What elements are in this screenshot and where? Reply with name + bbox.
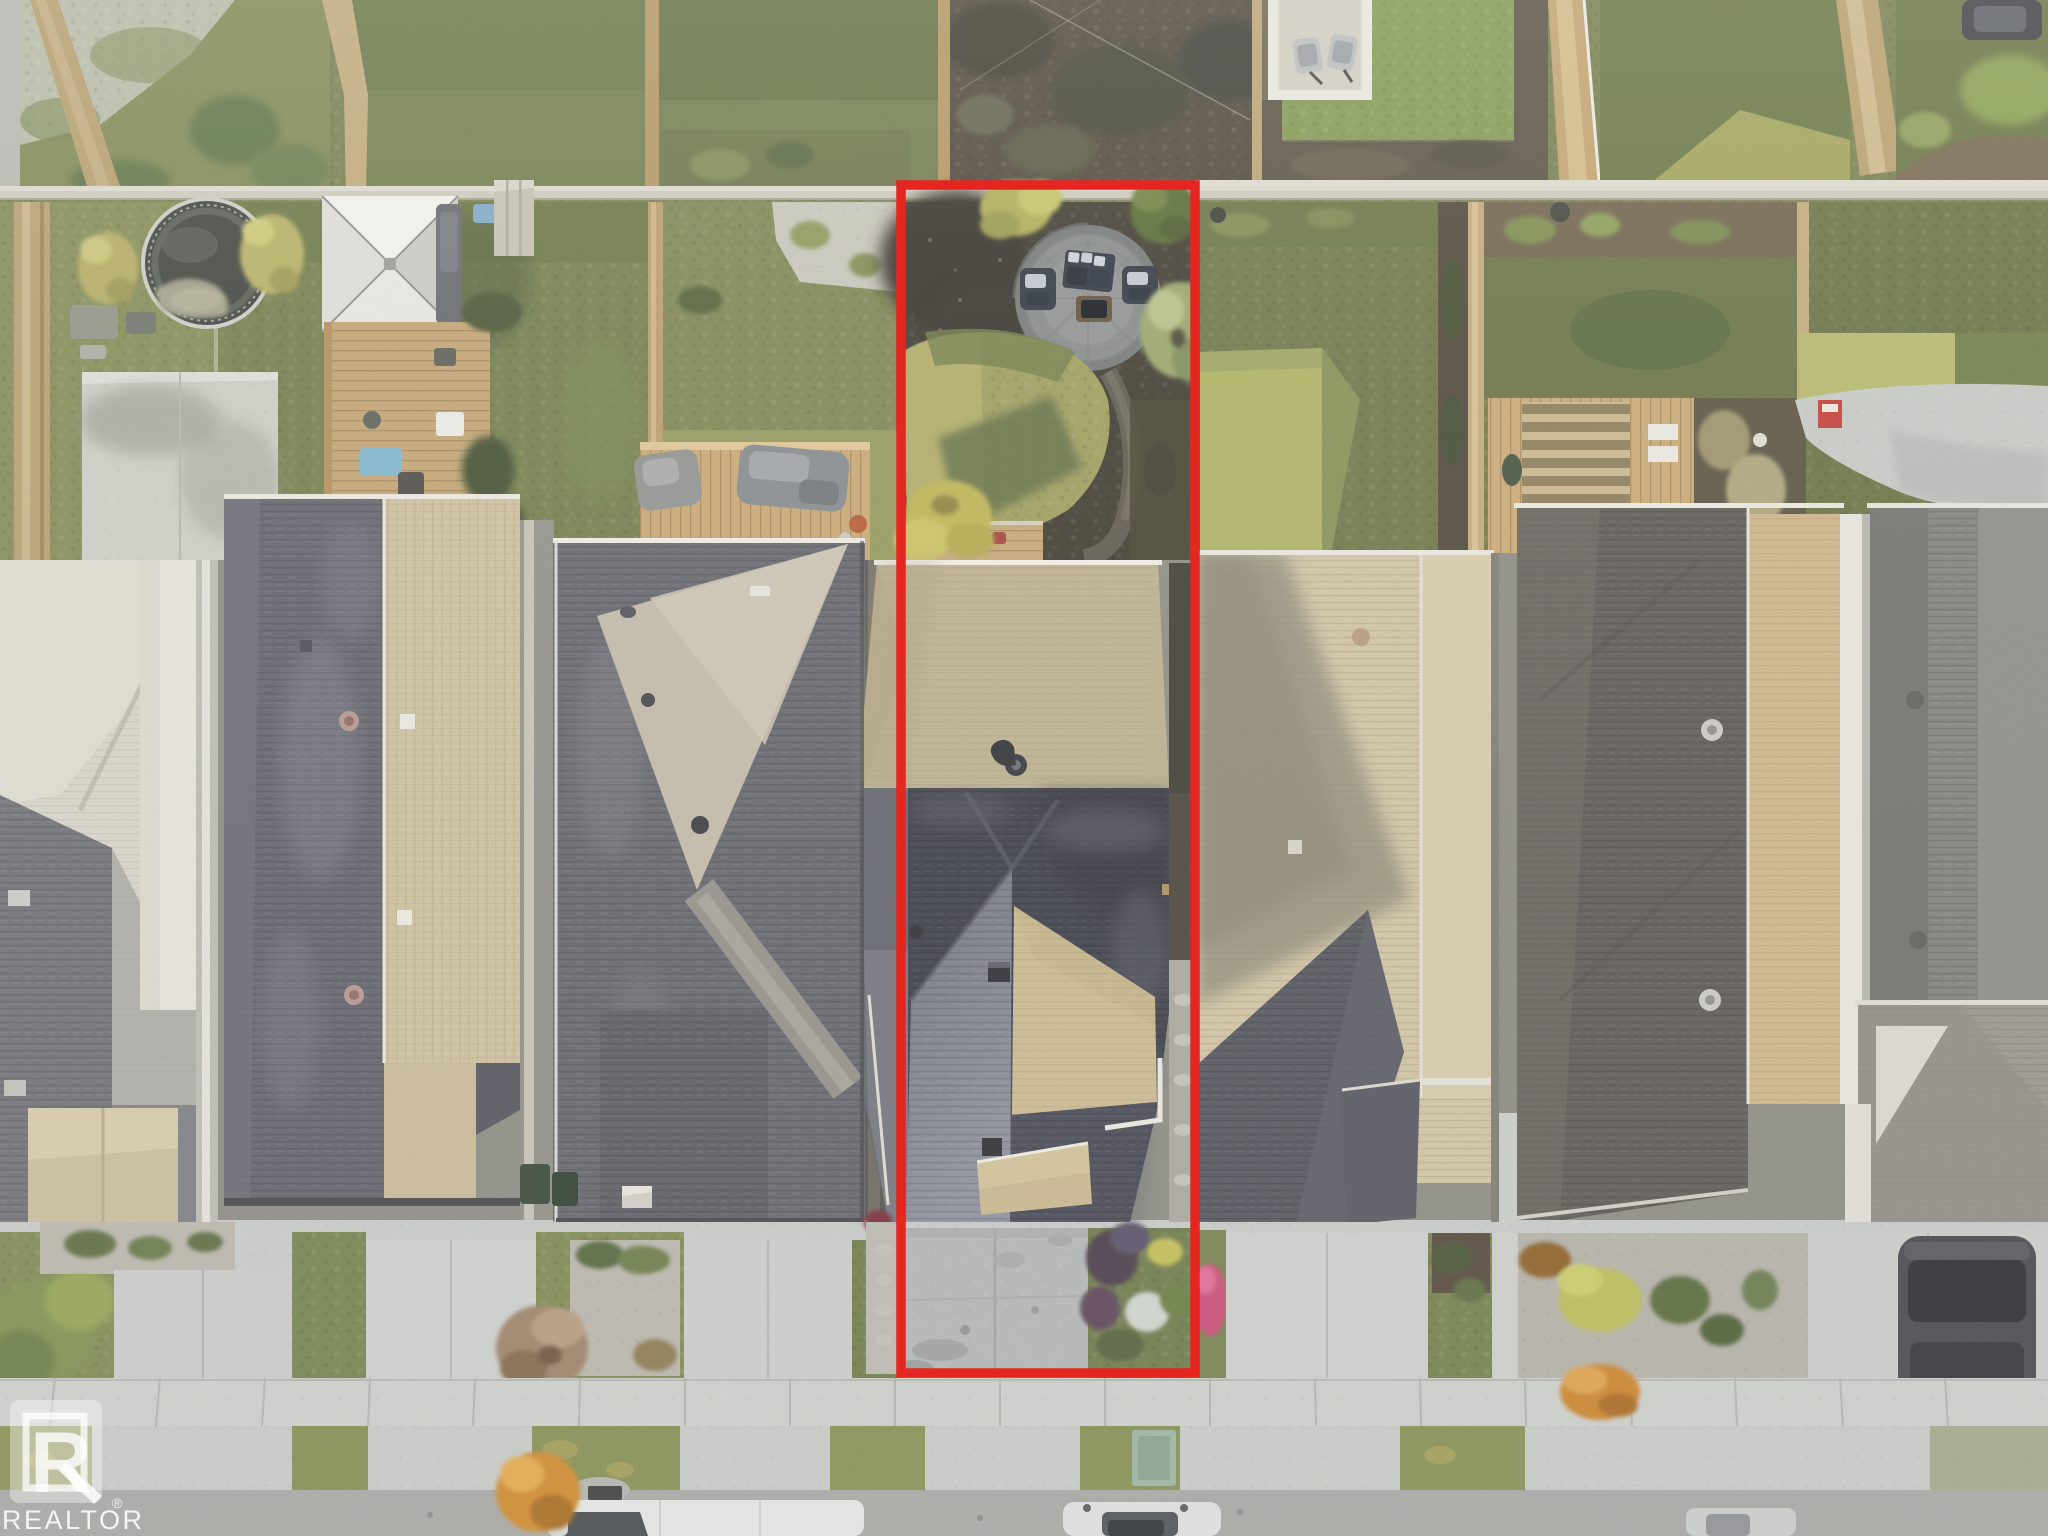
svg-text:®: ® [112,1495,123,1511]
svg-text:REALTOR: REALTOR [2,1505,145,1535]
svg-text:R: R [30,1415,92,1511]
